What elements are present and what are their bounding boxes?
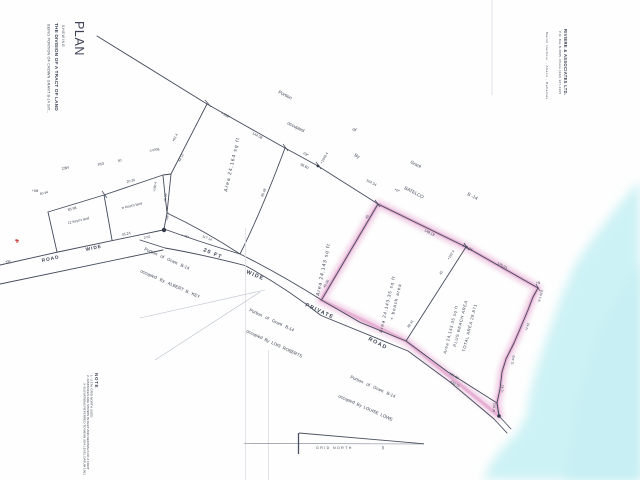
- svg-text:+0M: +0M: [32, 189, 39, 193]
- svg-text:THE DIVISION OF A TRACT OF LAN: THE DIVISION OF A TRACT OF LAND: [53, 23, 59, 111]
- svg-text:3- ELEVATIONS REFERRED TO MEAN: 3- ELEVATIONS REFERRED TO MEAN SEA LEVEL…: [83, 383, 87, 475]
- svg-text:SHEWING: SHEWING: [61, 25, 65, 48]
- svg-text:GRID NORTH: GRID NORTH: [316, 446, 353, 450]
- svg-text:PLAN: PLAN: [72, 21, 86, 56]
- svg-text:M 152: M 152: [492, 403, 496, 412]
- svg-text:Marsh Harbour , Abaco , Bahama: Marsh Harbour , Abaco , Bahamas: [545, 32, 549, 100]
- svg-text:RIVIERE & ASSOCIATES LTD.: RIVIERE & ASSOCIATES LTD.: [563, 29, 568, 95]
- svg-text:+0 36: +0 36: [163, 193, 168, 202]
- svg-text:+06 4: +06 4: [165, 212, 170, 221]
- svg-text:P.O. Box N-4805, Phone (242) 3: P.O. Box N-4805, Phone (242) 367-4365: [558, 31, 562, 94]
- svg-text:NOTE: NOTE: [94, 373, 99, 388]
- svg-text:BEING PORTION OF CROWN GRANT B: BEING PORTION OF CROWN GRANT B-14 SIT...: [47, 24, 51, 113]
- svg-text:+N: +N: [536, 281, 541, 285]
